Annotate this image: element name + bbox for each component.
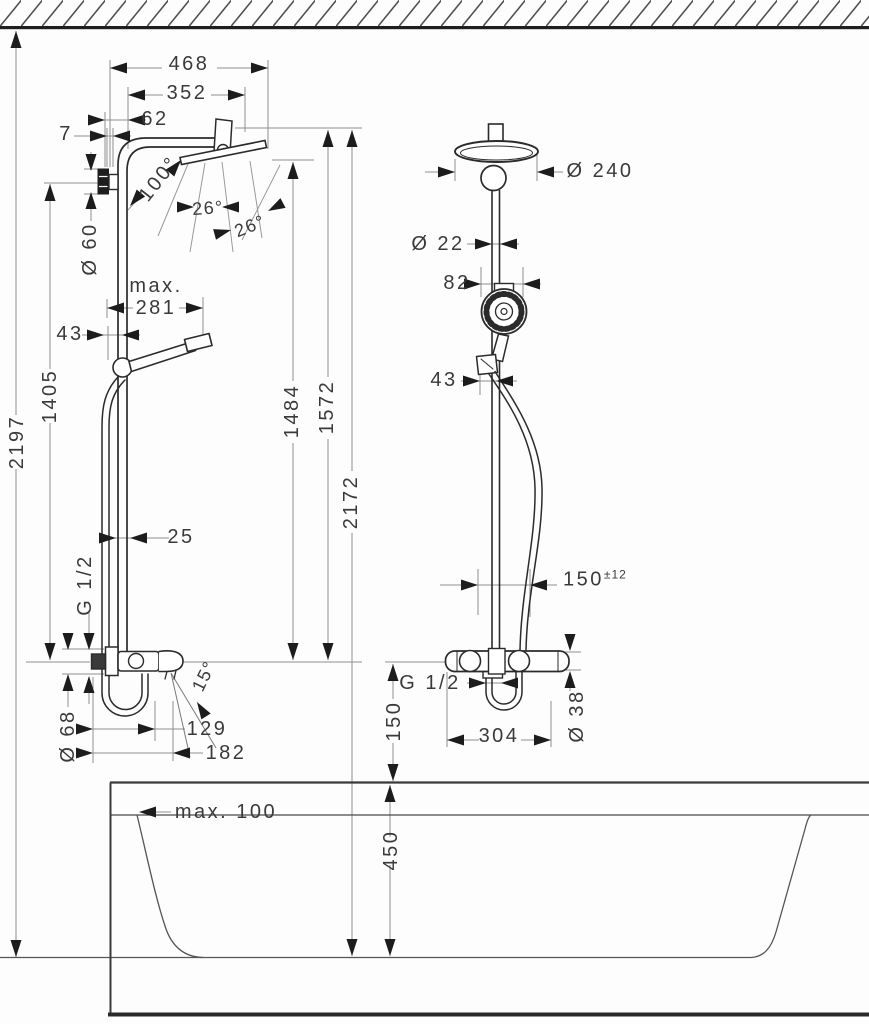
dim-label-7: 7	[59, 124, 73, 144]
dim-label-468: 468	[169, 54, 210, 74]
bracket-stem	[109, 175, 118, 190]
dim-label-dia-22: Ø 22	[411, 234, 464, 254]
dim-label-281: 281	[136, 298, 177, 318]
dim-label-1405: 1405	[40, 369, 60, 424]
dim-label-43-front: 43	[430, 370, 457, 390]
dimension-drawing-page: 468 352 62 7 100° 26° 26° Ø 60 max. 281 …	[0, 0, 869, 1024]
bathtub-inner-wall	[137, 815, 811, 958]
rail-base-block	[489, 649, 506, 675]
dim-label-max: max.	[129, 276, 182, 296]
dim-label-dia-240: Ø 240	[567, 161, 634, 181]
dim-label-26-left: 26°	[192, 198, 225, 218]
dim-label-dia-60: Ø 60	[80, 222, 100, 275]
dim-label-150-tol: 150±12	[563, 569, 627, 590]
technical-drawing	[0, 0, 869, 1024]
dim-label-182: 182	[206, 743, 247, 763]
dim-label-2197: 2197	[7, 415, 27, 470]
dim-label-43-side: 43	[56, 324, 83, 344]
dim-label-352: 352	[167, 83, 208, 103]
dim-label-max-100: max. 100	[175, 802, 277, 822]
tub-spout	[159, 651, 183, 672]
dim-label-129: 129	[187, 719, 228, 739]
dim-label-150-height: 150	[384, 701, 404, 742]
dim-label-2172: 2172	[341, 475, 361, 530]
dim-label-thread-front: G 1/2	[399, 673, 460, 693]
ball-joint	[481, 166, 506, 191]
tolerance-superscript: ±12	[604, 568, 627, 582]
hose-front	[489, 372, 542, 652]
dim-label-thread-side: G 1/2	[75, 554, 95, 615]
wall-bracket	[98, 169, 110, 195]
dim-label-25: 25	[167, 527, 194, 547]
dim-label-82: 82	[443, 273, 470, 293]
overhead-shower-front	[455, 141, 538, 162]
dim-label-1484: 1484	[282, 384, 302, 439]
thermostat-handle-right	[509, 651, 530, 672]
dim-label-1572: 1572	[317, 380, 337, 435]
dim-label-304: 304	[479, 726, 520, 746]
dim-label-450: 450	[381, 830, 401, 871]
wall-union-side	[92, 654, 106, 669]
dim-label-dia-68: Ø 68	[58, 709, 78, 762]
ceiling-hatch	[0, 0, 869, 29]
dim-label-62: 62	[141, 109, 168, 129]
thermostat-handle-left	[460, 651, 481, 672]
valve-escutcheon-side	[106, 647, 119, 676]
dim-label-dia-38: Ø 38	[567, 689, 587, 742]
valve-knob-side	[129, 654, 144, 669]
shower-rail	[492, 191, 500, 652]
handshower-head-side	[185, 334, 213, 352]
shower-unit-front-view	[446, 124, 570, 710]
